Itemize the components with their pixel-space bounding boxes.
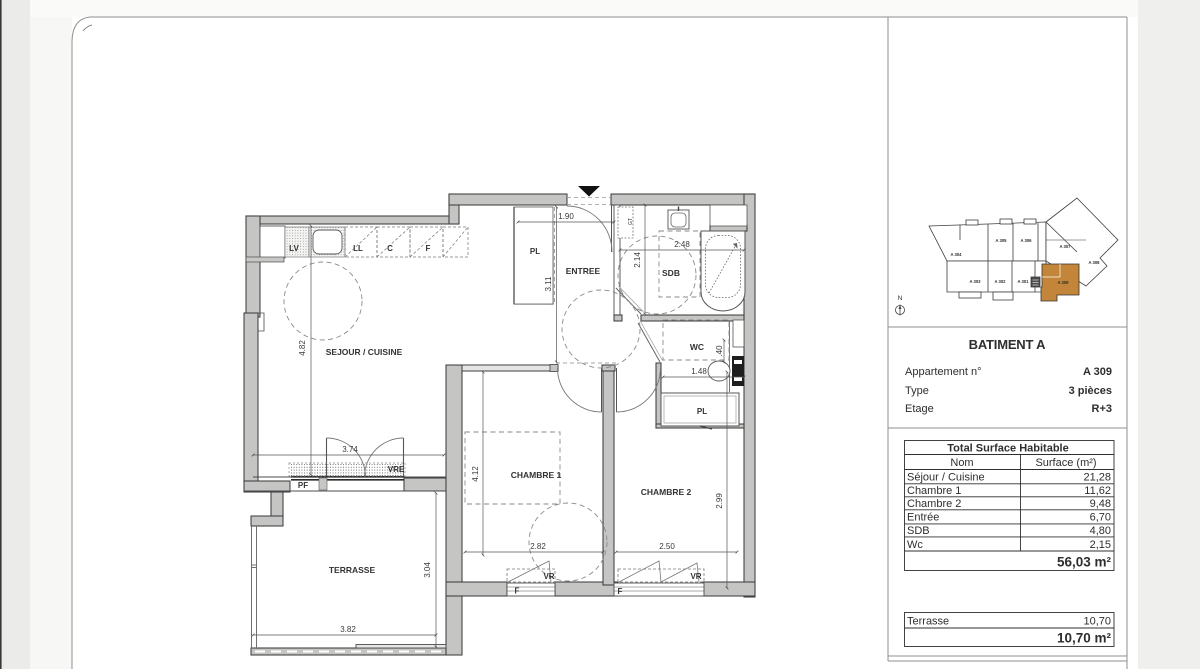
svg-text:Type: Type <box>905 385 929 397</box>
svg-text:LV: LV <box>289 244 299 253</box>
svg-text:3 pièces: 3 pièces <box>1069 385 1112 397</box>
svg-text:3.82: 3.82 <box>340 625 356 634</box>
svg-text:10,70: 10,70 <box>1083 616 1111 628</box>
svg-text:2.82: 2.82 <box>530 542 546 551</box>
svg-text:2.14: 2.14 <box>633 252 642 268</box>
svg-text:A 308: A 308 <box>1088 260 1100 265</box>
svg-text:Etage: Etage <box>905 403 934 415</box>
svg-text:R+3: R+3 <box>1092 403 1113 415</box>
svg-text:PL: PL <box>530 247 540 256</box>
svg-text:A 302: A 302 <box>994 279 1006 284</box>
svg-text:A 305: A 305 <box>995 238 1007 243</box>
svg-text:Wc: Wc <box>907 539 923 551</box>
svg-text:WC: WC <box>690 342 704 352</box>
svg-text:VR: VR <box>543 572 554 581</box>
svg-text:A 306: A 306 <box>1020 238 1032 243</box>
svg-text:21,28: 21,28 <box>1083 472 1111 484</box>
svg-text:SDB: SDB <box>662 268 680 278</box>
svg-text:F: F <box>618 587 623 596</box>
svg-text:2.99: 2.99 <box>715 493 724 509</box>
svg-text:F: F <box>515 587 520 596</box>
svg-text:4.12: 4.12 <box>471 466 480 482</box>
svg-text:2.50: 2.50 <box>659 542 675 551</box>
svg-text:3.74: 3.74 <box>342 445 358 454</box>
svg-text:Surface (m²): Surface (m²) <box>1035 457 1096 469</box>
svg-text:1.90: 1.90 <box>558 212 574 221</box>
svg-text:6,70: 6,70 <box>1090 512 1111 524</box>
svg-text:A 309: A 309 <box>1083 366 1112 378</box>
svg-text:9,48: 9,48 <box>1090 498 1111 510</box>
svg-text:GT: GT <box>628 218 634 225</box>
svg-text:4.82: 4.82 <box>298 340 307 356</box>
svg-text:CHAMBRE 2: CHAMBRE 2 <box>641 487 692 497</box>
svg-text:A 304: A 304 <box>950 252 962 257</box>
svg-text:3.11: 3.11 <box>544 276 553 292</box>
svg-text:10,70 m²: 10,70 m² <box>1057 631 1112 646</box>
svg-text:A 307: A 307 <box>1059 244 1071 249</box>
svg-text:Nom: Nom <box>950 457 973 469</box>
svg-text:11,62: 11,62 <box>1084 485 1111 497</box>
svg-text:CHAMBRE 1: CHAMBRE 1 <box>511 470 562 480</box>
svg-text:A 303: A 303 <box>969 279 981 284</box>
svg-text:2.48: 2.48 <box>674 240 690 249</box>
svg-text:Entrée: Entrée <box>907 512 939 524</box>
svg-text:Chambre 1: Chambre 1 <box>907 485 961 497</box>
svg-text:LL: LL <box>353 244 363 253</box>
svg-text:N: N <box>898 295 903 302</box>
svg-text:BATIMENT A: BATIMENT A <box>969 337 1047 352</box>
svg-text:A 309: A 309 <box>1057 280 1069 285</box>
svg-text:SEJOUR / CUISINE: SEJOUR / CUISINE <box>326 347 403 357</box>
svg-text:Terrasse: Terrasse <box>907 616 949 628</box>
svg-text:VR: VR <box>690 572 701 581</box>
svg-text:3.04: 3.04 <box>423 562 432 578</box>
svg-text:PF: PF <box>298 481 308 490</box>
svg-text:4,80: 4,80 <box>1090 525 1111 537</box>
svg-text:56,03 m²: 56,03 m² <box>1057 555 1112 570</box>
svg-text:1.48: 1.48 <box>691 367 707 376</box>
svg-text:SDB: SDB <box>907 525 930 537</box>
svg-text:C: C <box>387 244 393 253</box>
svg-text:VRE: VRE <box>388 465 405 474</box>
svg-text:.40: .40 <box>715 345 724 357</box>
svg-text:PL: PL <box>697 407 707 416</box>
svg-text:Total Surface Habitable: Total Surface Habitable <box>947 443 1068 455</box>
svg-text:A 301: A 301 <box>1017 279 1029 284</box>
svg-text:Appartement n°: Appartement n° <box>905 366 982 378</box>
svg-text:TERRASSE: TERRASSE <box>329 565 376 575</box>
svg-text:F: F <box>426 244 431 253</box>
svg-text:Séjour / Cuisine: Séjour / Cuisine <box>907 472 985 484</box>
svg-text:Chambre 2: Chambre 2 <box>907 498 961 510</box>
svg-text:ENTREE: ENTREE <box>566 266 601 276</box>
svg-text:2,15: 2,15 <box>1090 539 1111 551</box>
